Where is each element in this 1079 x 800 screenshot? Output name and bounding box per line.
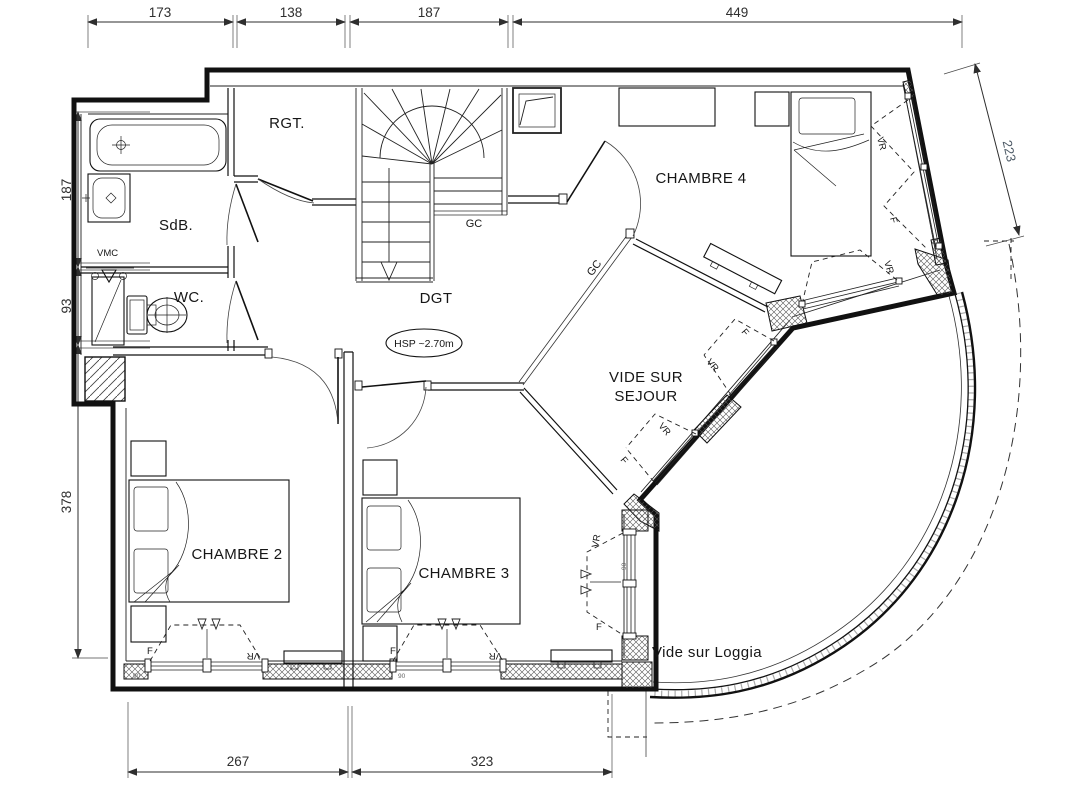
dim-top-1: 173 <box>149 5 172 20</box>
window-f-label: F <box>887 216 899 225</box>
room-label-chambre4: CHAMBRE 4 <box>655 170 746 187</box>
bed-chambre2 <box>129 480 289 602</box>
guardrail-void <box>519 234 632 385</box>
dim-top-2: 138 <box>280 5 303 20</box>
dim-left-3: 378 <box>59 491 74 514</box>
windows <box>145 93 942 672</box>
dimensions-bottom: 267 323 <box>128 694 612 778</box>
staircase <box>356 88 561 282</box>
guardrail-label-stair: GC <box>466 218 483 230</box>
window-f-label: F <box>390 646 396 657</box>
dimensions-top: 173 138 187 449 <box>88 5 962 48</box>
wall-hatch <box>622 636 648 660</box>
window-vr-label: VR <box>656 421 673 438</box>
closet-chambre4 <box>619 88 715 126</box>
dim-bottom-2: 323 <box>471 754 494 769</box>
room-label-sdb: SdB. <box>159 217 193 234</box>
stair-down-arrow <box>381 262 397 280</box>
sink-faucet <box>106 193 116 203</box>
room-label-vide-sejour-2: SEJOUR <box>614 388 677 405</box>
dim-bottom-1: 267 <box>227 754 250 769</box>
room-label-rgt: RGT. <box>269 115 305 132</box>
masonry-pier <box>85 357 125 401</box>
window-vr-label: VR <box>590 533 603 548</box>
hsp-label: HSP ~2.70m <box>394 338 454 350</box>
exterior-walls <box>74 70 954 689</box>
window-vr-label: VR <box>247 650 260 661</box>
closet <box>131 441 166 476</box>
closet <box>131 606 166 642</box>
dim-top-4: 449 <box>726 5 749 20</box>
vmc-symbol <box>102 270 116 282</box>
guardrail-stair <box>434 211 507 215</box>
wall-hatch <box>622 662 652 688</box>
wall-hatch <box>501 664 622 679</box>
window-vr-label: VR <box>704 357 721 374</box>
dimension-right: 223 <box>944 63 1024 246</box>
radiator <box>551 650 612 662</box>
wall-hatch <box>622 510 648 531</box>
sink <box>88 174 130 222</box>
dim-right-1: 223 <box>1000 139 1019 164</box>
floor-plan-drawing: 173 138 187 449 187 93 378 267 323 223 <box>0 0 1079 800</box>
nightstand <box>755 92 789 126</box>
window-vr-label: VR <box>874 136 888 152</box>
window-opening-symbols: 90 90 90 F VR F VR VR F F VR VR F VR VR … <box>133 100 926 680</box>
sill-mark: 90 <box>398 673 406 680</box>
room-label-chambre3: CHAMBRE 3 <box>418 565 509 582</box>
window-f-label: F <box>596 622 602 633</box>
sill-mark: 90 <box>133 673 141 680</box>
bed-chambre4 <box>791 92 871 256</box>
wall-hatch-mid <box>694 395 741 443</box>
loggia-curved-facade <box>608 238 1021 757</box>
sill-mark: 90 <box>621 562 628 570</box>
dim-top-3: 187 <box>418 5 441 20</box>
room-label-vide-loggia: Vide sur Loggia <box>652 644 762 661</box>
window-f-label: F <box>147 646 153 657</box>
bathtub <box>90 119 226 171</box>
bathroom-fixtures <box>82 119 226 345</box>
room-label-vide-sejour-1: VIDE SUR <box>609 369 683 386</box>
window-f-label: F <box>618 455 630 467</box>
vmc-label: VMC <box>97 248 118 259</box>
room-label-chambre2: CHAMBRE 2 <box>191 546 282 563</box>
duct-shaft <box>513 88 561 133</box>
room-label-dgt: DGT <box>420 290 453 307</box>
floor-plan-page: 173 138 187 449 187 93 378 267 323 223 <box>0 0 1079 800</box>
window-vr-label: VR <box>489 650 502 661</box>
closet <box>363 460 397 495</box>
room-label-wc: WC. <box>174 289 204 306</box>
radiator-diagonal <box>701 244 781 299</box>
window-f-label: F <box>739 327 751 339</box>
window-vr-label: VR <box>881 260 896 276</box>
wall-hatch <box>263 664 392 679</box>
guardrail-label-void: GC <box>585 258 605 278</box>
